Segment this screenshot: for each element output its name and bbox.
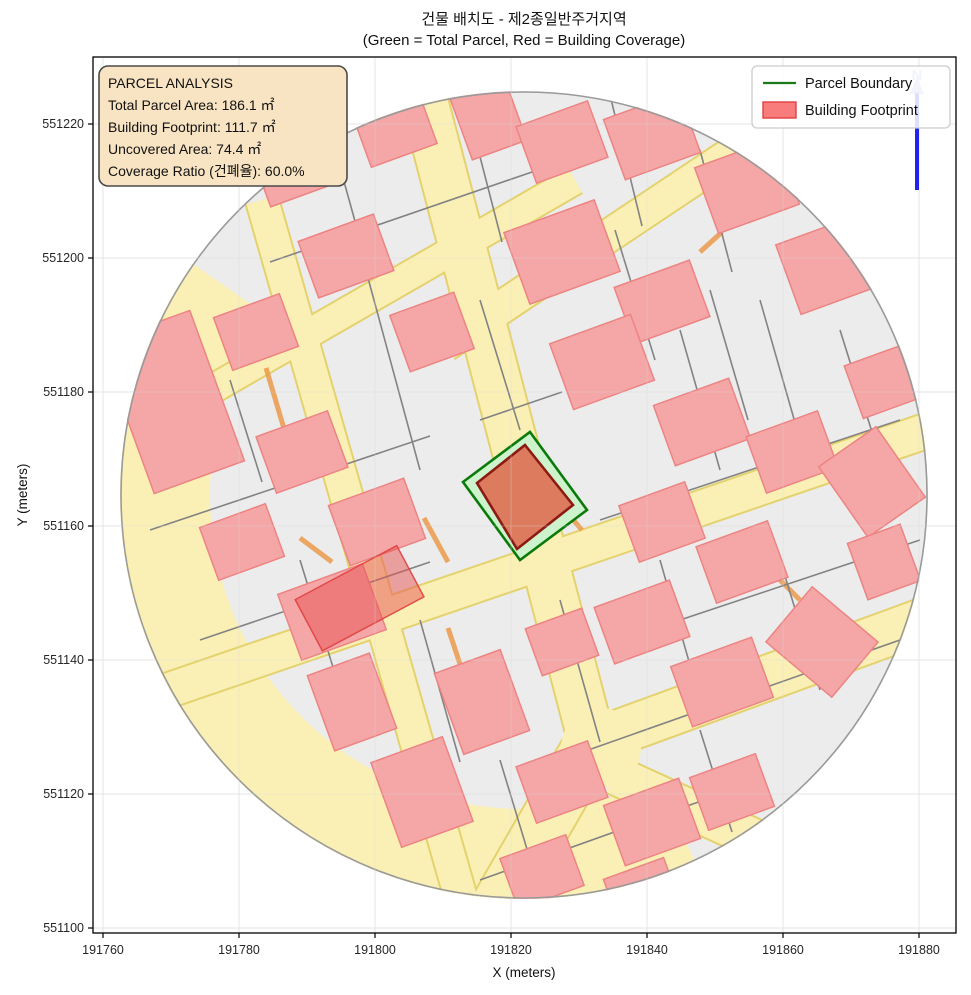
y-tick: 551140 — [43, 653, 84, 667]
y-tick-labels: 551220 551200 551180 551160 551140 55112… — [42, 117, 84, 935]
legend-building-patch-icon — [763, 102, 796, 118]
x-axis-label: X (meters) — [492, 965, 555, 980]
info-building-footprint: Building Footprint: 111.7 ㎡ — [108, 119, 276, 135]
x-tick: 191800 — [354, 943, 396, 957]
figure: 건물 배치도 - 제2종일반주거지역 (Green = Total Parcel… — [0, 0, 971, 990]
x-tick: 191880 — [898, 943, 940, 957]
x-tick: 191820 — [490, 943, 532, 957]
x-tick-labels: 191760 191780 191800 191820 191840 19186… — [82, 943, 940, 957]
plot-title: 건물 배치도 - 제2종일반주거지역 — [421, 11, 626, 28]
info-box: PARCEL ANALYSIS Total Parcel Area: 186.1… — [99, 66, 347, 186]
x-tick: 191780 — [218, 943, 260, 957]
legend-parcel-label: Parcel Boundary — [805, 76, 913, 92]
y-tick: 551220 — [42, 117, 84, 131]
x-tick: 191840 — [626, 943, 668, 957]
y-tick: 551120 — [43, 787, 84, 801]
info-total-parcel-area: Total Parcel Area: 186.1 ㎡ — [108, 97, 275, 113]
map-canvas — [100, 76, 958, 940]
info-coverage-ratio: Coverage Ratio (건폐율): 60.0% — [108, 163, 305, 179]
plot-svg: 건물 배치도 - 제2종일반주거지역 (Green = Total Parcel… — [0, 0, 971, 990]
legend: Parcel Boundary Building Footprint — [752, 66, 950, 128]
y-tick: 551100 — [43, 921, 84, 935]
y-tick: 551180 — [43, 385, 84, 399]
info-uncovered-area: Uncovered Area: 74.4 ㎡ — [108, 141, 261, 157]
plot-subtitle: (Green = Total Parcel, Red = Building Co… — [363, 32, 685, 49]
legend-building-label: Building Footprint — [805, 103, 918, 119]
y-tick: 551160 — [43, 519, 84, 533]
x-tick: 191760 — [82, 943, 124, 957]
y-axis-label: Y (meters) — [15, 464, 30, 527]
info-title: PARCEL ANALYSIS — [108, 75, 233, 91]
x-tick: 191860 — [762, 943, 804, 957]
y-tick: 551200 — [42, 251, 84, 265]
